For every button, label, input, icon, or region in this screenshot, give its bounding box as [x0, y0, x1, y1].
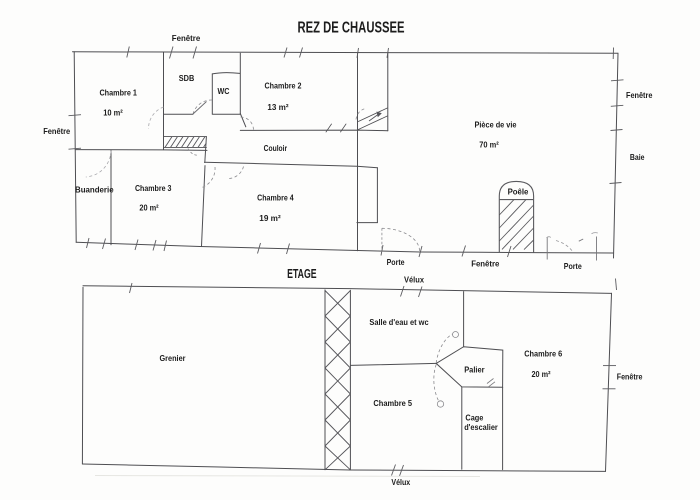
svg-text:19 m²: 19 m² [259, 213, 281, 223]
svg-text:10 m²: 10 m² [103, 108, 123, 118]
svg-text:WC: WC [218, 86, 230, 96]
svg-text:Porte: Porte [387, 257, 405, 267]
svg-text:Chambre 2: Chambre 2 [265, 81, 302, 91]
svg-text:Cage: Cage [465, 412, 483, 422]
svg-text:Fenêtre: Fenêtre [172, 33, 201, 43]
svg-text:SDB: SDB [179, 73, 195, 83]
svg-text:Buanderie: Buanderie [75, 185, 114, 195]
svg-text:70 m²: 70 m² [479, 139, 499, 149]
svg-text:Chambre 1: Chambre 1 [99, 88, 137, 98]
svg-text:20 m²: 20 m² [532, 369, 551, 379]
svg-text:Fenêtre: Fenêtre [617, 372, 643, 382]
svg-text:Salle d'eau et wc: Salle d'eau et wc [369, 317, 428, 327]
svg-text:d'escalier: d'escalier [464, 422, 498, 432]
svg-text:Fenêtre: Fenêtre [43, 126, 70, 136]
svg-text:Porte: Porte [564, 261, 582, 271]
svg-text:Baie: Baie [630, 152, 645, 162]
svg-text:20 m²: 20 m² [139, 202, 158, 212]
svg-text:Poêle: Poêle [508, 186, 529, 196]
svg-text:Chambre 5: Chambre 5 [373, 398, 412, 408]
svg-text:Fenêtre: Fenêtre [471, 259, 500, 269]
svg-text:Palier: Palier [464, 364, 485, 374]
svg-text:Vélux: Vélux [391, 477, 410, 487]
svg-text:Chambre 4: Chambre 4 [257, 192, 294, 202]
svg-text:Pièce de vie: Pièce de vie [475, 119, 517, 129]
svg-text:Chambre 3: Chambre 3 [135, 183, 172, 193]
svg-text:Fenêtre: Fenêtre [626, 90, 653, 100]
svg-text:Chambre 6: Chambre 6 [524, 349, 562, 359]
svg-text:13 m²: 13 m² [267, 102, 288, 112]
svg-text:REZ DE CHAUSSEE: REZ DE CHAUSSEE [298, 20, 405, 37]
svg-text:ETAGE: ETAGE [287, 266, 317, 281]
svg-text:Couloir: Couloir [264, 143, 288, 153]
svg-text:Vélux: Vélux [404, 274, 424, 284]
svg-text:Grenier: Grenier [160, 353, 187, 363]
